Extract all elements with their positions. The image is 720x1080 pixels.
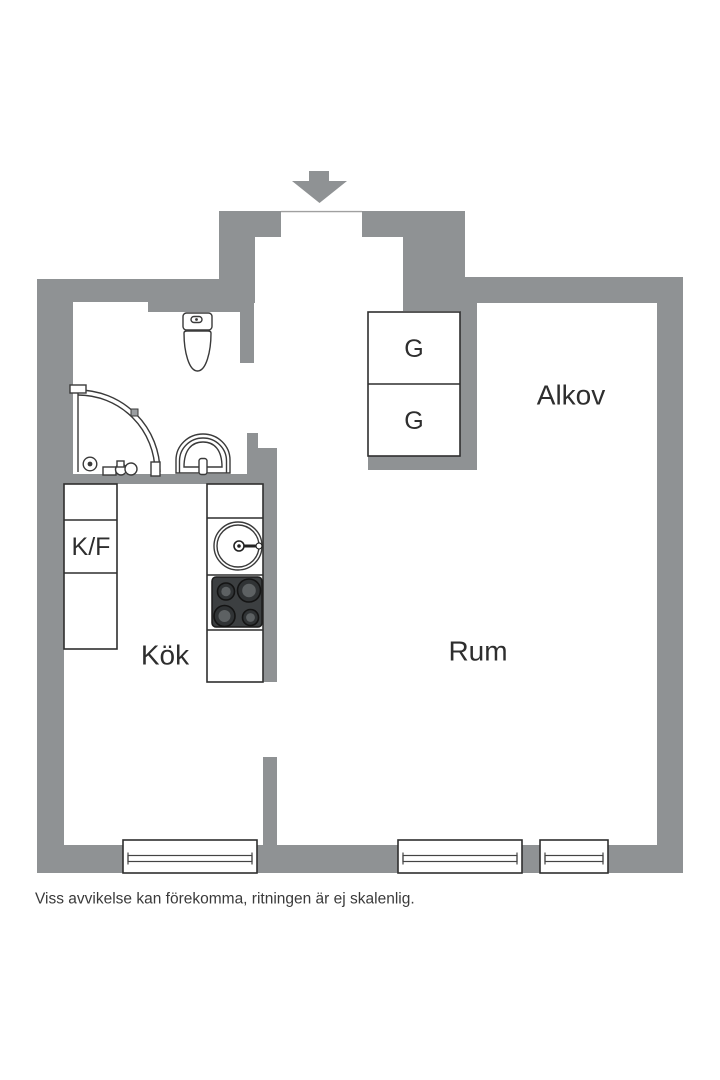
closet-label-top: G [404,335,423,363]
washbasin-icon [176,434,230,475]
closet-label-bottom: G [404,407,423,435]
disclaimer-text: Viss avvikelse kan förekomma, ritningen … [35,891,415,908]
kitchen-counter [207,484,263,682]
floor-plan-page: G G K/F [0,0,720,1080]
toilet-icon [183,313,212,371]
walls [37,171,683,873]
room-label-kok: Kök [141,640,190,671]
shower-drain-icon [83,457,97,471]
stove-4-burner-icon [212,577,262,627]
window-right [540,840,608,873]
entrance-arrow-down-icon [292,171,347,203]
kf-label: K/F [72,533,111,561]
closet-cabinet: G G [368,312,460,456]
floor-plan-drawing: G G K/F [0,0,720,1080]
window-left [123,840,257,873]
room-label-rum: Rum [448,636,507,667]
room-label-alkov: Alkov [537,380,605,411]
window-center [398,840,522,873]
corner-shower-icon [70,385,160,476]
shower-mixer-icon [103,461,137,475]
fridge-freezer-cabinet: K/F [64,484,117,649]
